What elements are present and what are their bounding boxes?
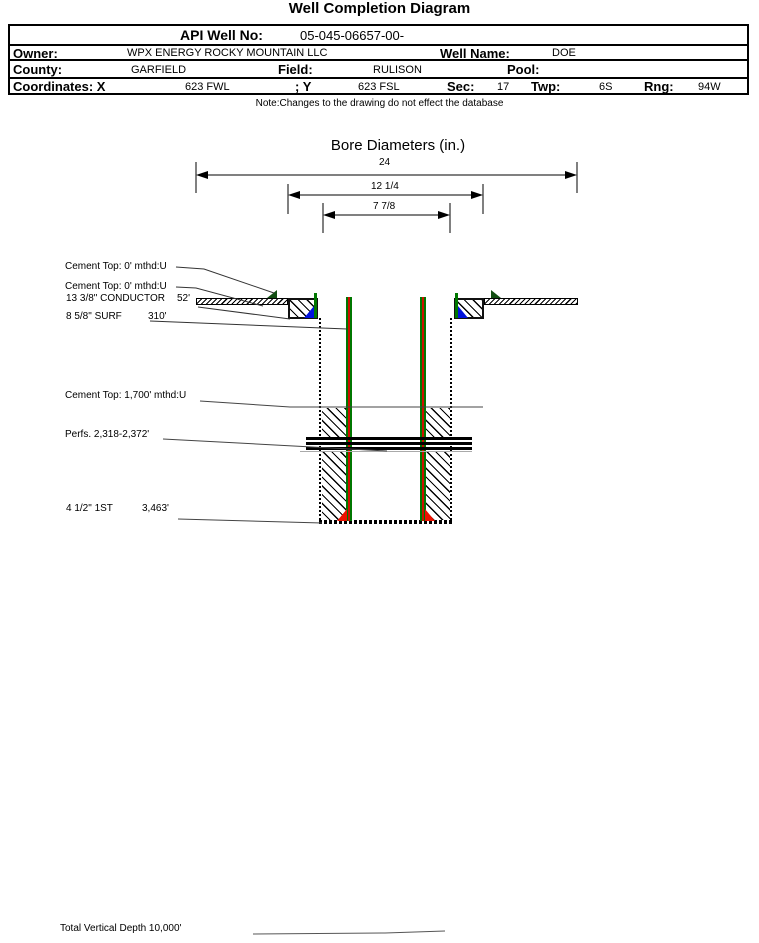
owner-value: WPX ENERGY ROCKY MOUNTAIN LLC	[127, 47, 327, 59]
page-title: Well Completion Diagram	[0, 0, 759, 17]
dim-7-78-label: 7 7/8	[373, 201, 395, 212]
production-casing-right	[420, 297, 426, 521]
well-name-value: DOE	[552, 47, 576, 59]
surface-bar-left	[196, 298, 288, 305]
rng-value: 94W	[698, 81, 721, 93]
dim-7-78-arrow-right	[438, 211, 450, 219]
leader-tvd	[253, 931, 445, 934]
coord-y-label: ; Y	[295, 79, 311, 94]
annulus-cement-left-upper	[322, 408, 346, 437]
leader-production-casing	[178, 519, 322, 523]
dim-24-arrow-left	[196, 171, 208, 179]
county-value: GARFIELD	[131, 64, 186, 76]
dim-24-arrow-right	[565, 171, 577, 179]
sec-value: 17	[497, 81, 509, 93]
tvd-label: Total Vertical Depth 10,000'	[60, 923, 181, 934]
dim-12-14-arrow-left	[288, 191, 300, 199]
field-value: RULISON	[373, 64, 422, 76]
api-well-no-value: 05-045-06657-00-	[300, 28, 404, 43]
production-casing-label: 4 1/2" 1ST	[66, 503, 113, 514]
well-completion-page: Well Completion Diagram API Well No: 05-…	[0, 0, 759, 943]
leader-conductor	[198, 307, 290, 319]
perfs-label: Perfs. 2,318-2,372'	[65, 429, 149, 440]
bore-diameters-title: Bore Diameters (in.)	[0, 137, 759, 154]
coord-x-value: 623 FWL	[185, 81, 230, 93]
annulus-cement-left-lower	[322, 451, 346, 520]
perforation-line	[306, 442, 472, 445]
twp-value: 6S	[599, 81, 612, 93]
perforation-underline	[300, 451, 472, 452]
production-casing-left	[346, 297, 352, 521]
dim-12-14-label: 12 1/4	[371, 181, 399, 192]
sec-label: Sec:	[447, 79, 474, 94]
surface-bar-right	[484, 298, 578, 305]
leader-cement-top-production	[200, 401, 483, 407]
coordinates-label: Coordinates: X	[13, 79, 105, 94]
dim-24-label: 24	[379, 157, 390, 168]
annulus-cement-right-upper	[426, 408, 450, 437]
annulus-cement-right-lower	[426, 451, 450, 520]
cement-top-conductor-label: Cement Top: 0' mthd:U	[65, 261, 167, 272]
cement-top-surface-label: Cement Top: 0' mthd:U	[65, 281, 167, 292]
perforation-line	[306, 447, 472, 450]
pool-label: Pool:	[507, 62, 540, 77]
coord-y-value: 623 FSL	[358, 81, 400, 93]
rng-label: Rng:	[644, 79, 674, 94]
conductor-casing-label: 13 3/8" CONDUCTOR	[66, 293, 165, 304]
field-label: Field:	[278, 62, 313, 77]
dim-7-78-arrow-left	[323, 211, 335, 219]
database-note: Note:Changes to the drawing do not effec…	[0, 98, 759, 109]
leader-cement-top-conductor	[176, 267, 274, 293]
borehole-wall-right	[450, 318, 452, 524]
table-row-separator	[8, 44, 749, 46]
surface-casing-right	[455, 293, 458, 318]
leader-surface-casing	[150, 321, 347, 329]
api-well-no-label: API Well No:	[180, 27, 263, 43]
table-row-separator	[8, 59, 749, 61]
conductor-depth-value: 52'	[177, 293, 190, 304]
surface-casing-left	[314, 293, 317, 318]
perforation-line	[306, 437, 472, 440]
county-label: County:	[13, 62, 62, 77]
cement-top-marker-left	[267, 290, 277, 298]
cement-top-production-label: Cement Top: 1,700' mthd:U	[65, 390, 186, 401]
cement-top-marker-right	[491, 290, 501, 298]
surface-depth-value: 310'	[148, 311, 167, 322]
borehole-wall-left	[319, 318, 321, 524]
owner-label: Owner:	[13, 46, 58, 61]
well-name-label: Well Name:	[440, 46, 510, 61]
twp-label: Twp:	[531, 79, 560, 94]
dim-12-14-arrow-right	[471, 191, 483, 199]
table-row-separator	[8, 77, 749, 79]
surface-casing-label: 8 5/8" SURF	[66, 311, 122, 322]
production-depth-value: 3,463'	[142, 503, 169, 514]
